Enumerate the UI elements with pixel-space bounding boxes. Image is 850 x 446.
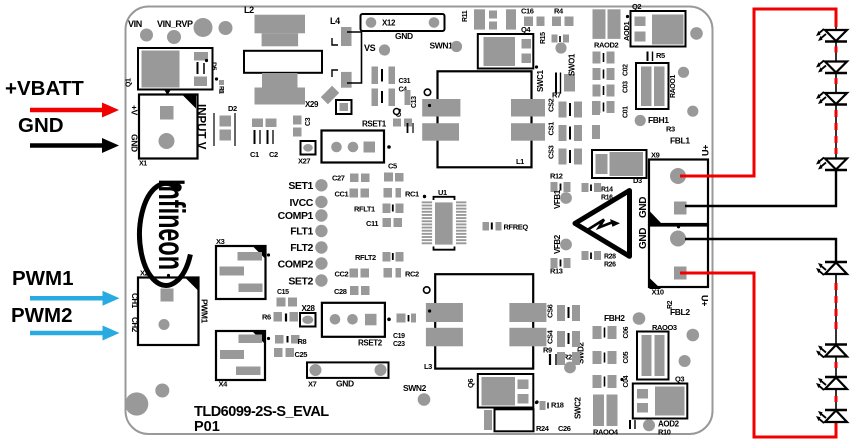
svg-text:Q1: Q1 [126,78,133,87]
svg-text:C3: C3 [305,117,312,126]
svg-text:D5: D5 [210,62,217,71]
svg-text:C1: C1 [250,150,259,159]
svg-text:INPUT V: INPUT V [195,104,207,150]
svg-text:R15: R15 [540,32,547,44]
svg-text:CH1: CH1 [130,293,139,309]
svg-text:RC1: RC1 [405,190,419,199]
svg-text:FBL2: FBL2 [670,307,690,317]
svg-text:SWO1: SWO1 [568,53,577,76]
svg-text:SET2: SET2 [288,276,313,288]
svg-text:X29: X29 [305,100,319,109]
svg-text:CC1: CC1 [335,190,349,199]
svg-text:C19: C19 [393,333,405,340]
svg-text:C28: C28 [334,287,347,296]
svg-text:GND: GND [638,228,649,249]
svg-text:C01: C01 [623,106,630,118]
svg-text:CS6: CS6 [546,304,555,318]
svg-text:Q6: Q6 [466,379,475,388]
svg-text:P01: P01 [194,419,220,435]
svg-text:PWM2: PWM2 [11,304,73,327]
svg-text:C13: C13 [411,96,418,108]
svg-text:X28: X28 [302,304,316,313]
svg-text:R12: R12 [550,172,563,181]
svg-text:L4: L4 [330,16,340,26]
svg-text:C04: C04 [623,375,630,387]
svg-text:R18: R18 [551,401,564,410]
svg-text:L1: L1 [516,157,524,166]
svg-text:R3: R3 [666,125,675,134]
svg-text:GND: GND [638,197,649,218]
svg-text:X3: X3 [216,237,225,246]
svg-text:C31: C31 [399,78,411,85]
svg-text:FLT1: FLT1 [290,226,313,238]
svg-text:R24: R24 [536,424,550,433]
svg-text:RSET1: RSET1 [362,120,387,129]
svg-text:Q4: Q4 [521,25,531,34]
svg-text:RSET2: RSET2 [358,339,383,348]
svg-text:PWM1: PWM1 [12,267,74,290]
svg-text:C03: C03 [623,81,630,93]
svg-text:Infineon: Infineon [151,179,192,270]
svg-text:C25: C25 [295,350,308,359]
svg-text:X4: X4 [219,380,229,389]
svg-text:+VBATT: +VBATT [5,77,84,100]
svg-text:CS1: CS1 [547,122,556,136]
svg-text:L3: L3 [424,362,432,371]
svg-text:SWC2: SWC2 [574,397,583,419]
svg-text:COMP2: COMP2 [278,259,314,271]
svg-text:D3: D3 [633,176,642,185]
svg-text:C11: C11 [366,219,378,228]
svg-text:C23: C23 [393,341,405,348]
svg-text:R6: R6 [262,313,271,322]
svg-text:CS3: CS3 [547,145,556,159]
svg-text:X12: X12 [382,19,396,28]
svg-text:D2: D2 [228,104,237,113]
svg-text:COMP1: COMP1 [278,210,314,222]
svg-text:RAOO1: RAOO1 [670,75,677,98]
svg-text:RFREQ: RFREQ [504,223,529,232]
svg-text:C27: C27 [332,174,345,183]
svg-text:U+: U+ [700,295,710,306]
svg-text:R14: R14 [601,187,613,194]
svg-text:SWN1: SWN1 [430,41,454,51]
svg-text:RFLT2: RFLT2 [355,253,376,262]
svg-text:FBL1: FBL1 [670,136,690,146]
svg-text:RC2: RC2 [405,270,419,279]
svg-text:Q3: Q3 [675,375,684,384]
svg-text:Q2: Q2 [632,2,641,11]
svg-text:SET1: SET1 [288,180,313,192]
svg-text:R7: R7 [552,91,561,100]
svg-text:R10: R10 [658,428,671,437]
svg-text:GND: GND [130,134,140,152]
svg-text:C26: C26 [558,424,571,433]
svg-text:U1: U1 [438,188,447,197]
svg-text:C06: C06 [623,326,630,338]
svg-text:C5: C5 [388,162,397,171]
svg-text:R26: R26 [604,262,616,269]
svg-text:C16: C16 [521,7,534,16]
svg-text:CS2: CS2 [547,98,556,112]
svg-text:VIN_RVP: VIN_RVP [157,19,193,29]
svg-text:PWM1: PWM1 [200,299,210,324]
svg-text:CH2: CH2 [130,317,139,333]
svg-text:VIN: VIN [128,19,142,29]
svg-text:GND: GND [395,31,413,41]
svg-text:RFLT1: RFLT1 [354,205,375,214]
svg-text:X9: X9 [651,151,660,160]
svg-text:GND: GND [336,379,354,389]
svg-text:VS: VS [364,43,376,53]
svg-text:X7: X7 [308,380,317,389]
svg-text:C15: C15 [277,289,289,296]
svg-text:X1: X1 [139,161,147,168]
svg-text:SWN2: SWN2 [403,383,427,393]
svg-text:TLD6099-2S-S_EVAL: TLD6099-2S-S_EVAL [194,404,329,420]
svg-text:GND: GND [18,114,64,137]
svg-text:R4: R4 [554,7,564,16]
svg-text:FBH2: FBH2 [604,313,625,323]
svg-text:+V: +V [130,105,140,116]
svg-text:R8: R8 [298,337,307,346]
svg-text:CS4: CS4 [546,329,555,344]
svg-text:U+: U+ [701,145,711,156]
svg-text:IVCC: IVCC [290,197,314,209]
svg-text:R5: R5 [656,51,665,60]
svg-text:L2: L2 [244,5,254,15]
svg-text:R1: R1 [218,86,225,94]
svg-text:R9: R9 [543,346,552,355]
svg-text:FLT2: FLT2 [290,242,313,254]
svg-text:X27: X27 [298,157,310,166]
svg-text:CC2: CC2 [335,270,349,279]
svg-text:R11: R11 [462,10,469,22]
svg-text:C02: C02 [623,64,630,76]
svg-text:SWC1: SWC1 [536,70,545,92]
svg-text:RAOD2: RAOD2 [594,41,618,50]
svg-text:X10: X10 [652,288,664,297]
svg-text:FBH1: FBH1 [648,115,669,125]
svg-text:R28: R28 [604,254,616,261]
svg-text:C05: C05 [623,351,630,363]
svg-text:C2: C2 [269,150,278,159]
svg-text:RAOO4: RAOO4 [593,428,619,437]
